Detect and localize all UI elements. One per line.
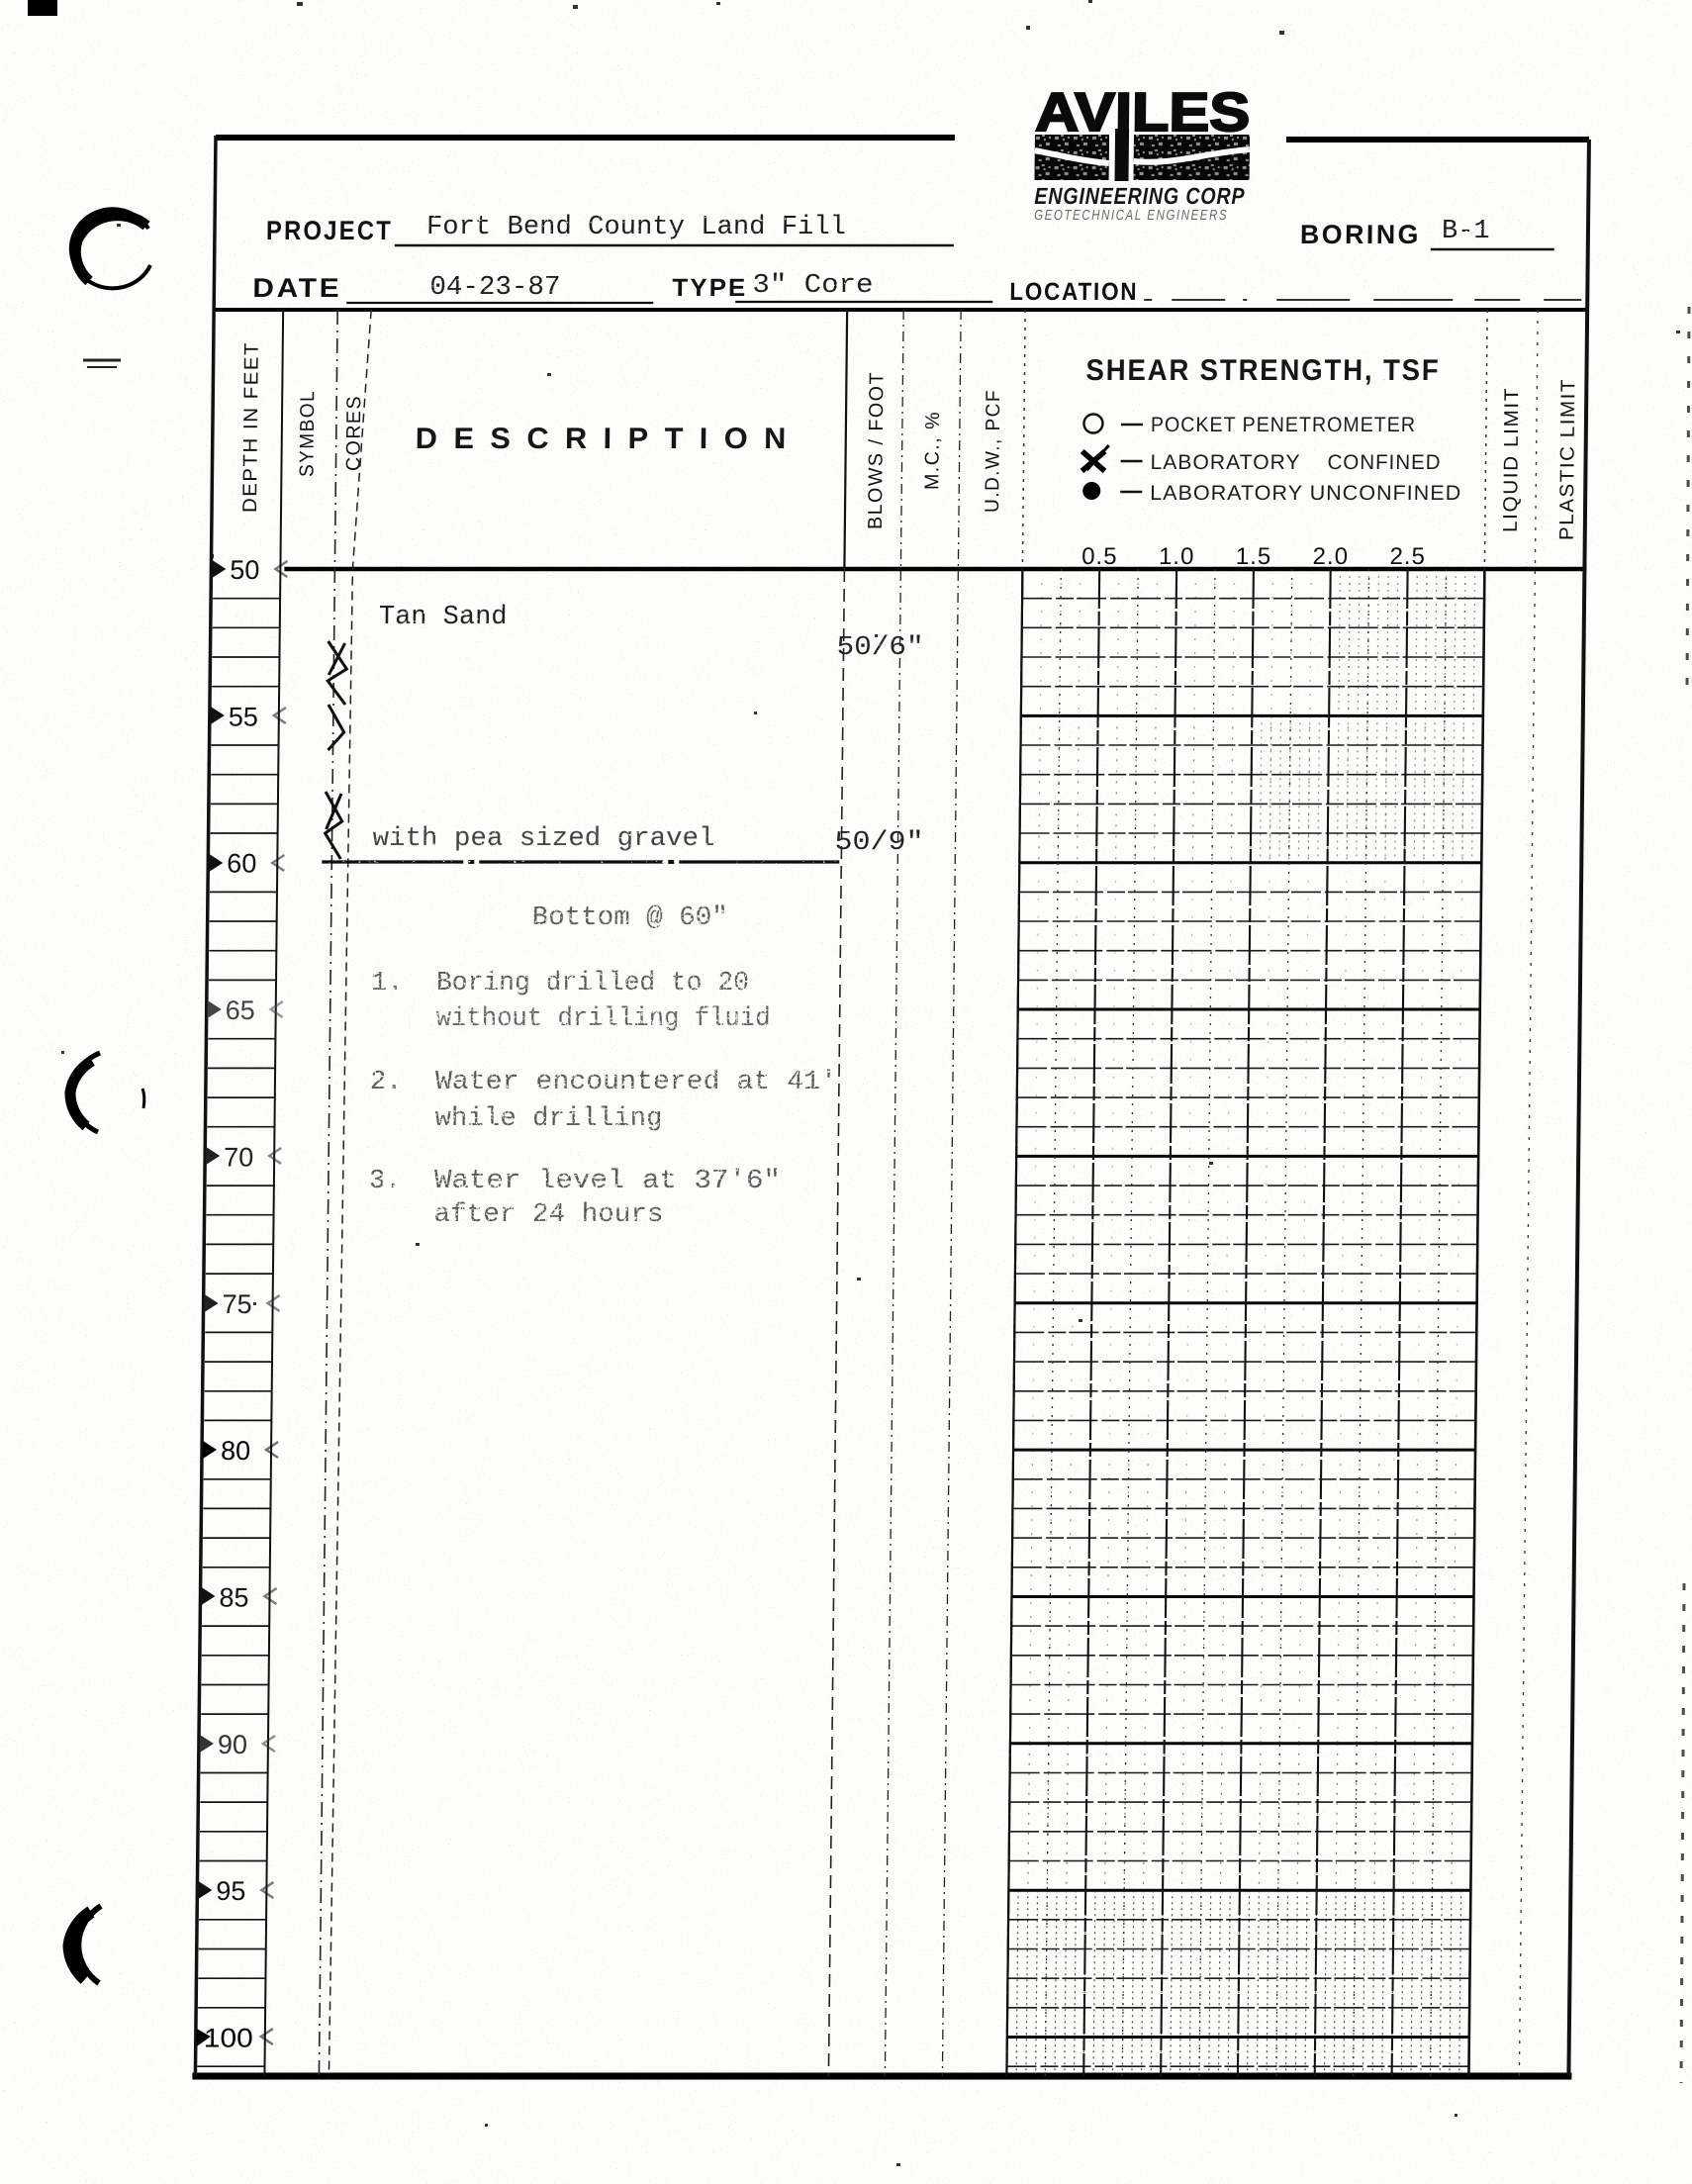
svg-text:PROJECT: PROJECT <box>266 216 393 245</box>
svg-text:Water level at 37'6": Water level at 37'6" <box>434 1167 781 1196</box>
svg-text:CONFINED: CONFINED <box>1327 451 1441 474</box>
svg-text:without drilling fluid: without drilling fluid <box>435 1004 770 1034</box>
svg-text:50: 50 <box>230 555 259 585</box>
svg-text:LOCATION: LOCATION <box>1009 278 1138 306</box>
svg-text:AVILES: AVILES <box>1035 81 1251 142</box>
svg-text:2.: 2. <box>370 1068 403 1097</box>
svg-text:95: 95 <box>216 1876 245 1906</box>
svg-text:BLOWS / FOOT: BLOWS / FOOT <box>865 371 889 529</box>
svg-text:50/9": 50/9" <box>834 828 923 858</box>
svg-text:M.C., %: M.C., % <box>921 411 944 490</box>
svg-text:Water encountered at 41': Water encountered at 41' <box>435 1068 837 1097</box>
svg-text:2.5: 2.5 <box>1389 543 1426 570</box>
svg-text:0.5: 0.5 <box>1081 543 1118 570</box>
svg-text:LABORATORY UNCONFINED: LABORATORY UNCONFINED <box>1150 482 1461 505</box>
svg-text:3.: 3. <box>369 1167 402 1196</box>
svg-text:after 24 hours: after 24 hours <box>433 1200 663 1230</box>
svg-text:U.D.W., PCF: U.D.W., PCF <box>982 389 1004 513</box>
svg-text:LABORATORY: LABORATORY <box>1150 451 1300 474</box>
svg-text:POCKET PENETROMETER: POCKET PENETROMETER <box>1151 414 1416 436</box>
svg-text:with pea sized gravel: with pea sized gravel <box>372 824 714 854</box>
svg-text:DEPTH IN FEET: DEPTH IN FEET <box>239 341 263 513</box>
svg-text:SHEAR STRENGTH, TSF: SHEAR STRENGTH, TSF <box>1085 354 1440 387</box>
svg-text:04-23-87: 04-23-87 <box>429 273 560 303</box>
svg-text:80: 80 <box>221 1436 250 1466</box>
svg-text:3" Core: 3" Core <box>752 271 873 301</box>
svg-text:60: 60 <box>227 849 256 879</box>
svg-text:PLASTIC LIMIT: PLASTIC LIMIT <box>1556 378 1580 540</box>
svg-text:50/6": 50/6" <box>836 633 923 663</box>
svg-text:DESCRIPTION: DESCRIPTION <box>416 423 802 455</box>
svg-text:B-1: B-1 <box>1442 217 1490 246</box>
svg-text:65: 65 <box>226 996 255 1025</box>
svg-text:SYMBOL: SYMBOL <box>296 390 319 477</box>
svg-text:Bottom @ 60": Bottom @ 60" <box>532 903 728 933</box>
svg-text:TYPE: TYPE <box>672 274 747 302</box>
svg-text:90: 90 <box>218 1730 247 1759</box>
svg-text:CORES: CORES <box>342 395 365 471</box>
svg-text:70: 70 <box>224 1142 253 1172</box>
svg-text:85: 85 <box>219 1583 248 1613</box>
svg-text:1.5: 1.5 <box>1236 543 1272 570</box>
svg-text:1.0: 1.0 <box>1159 543 1195 570</box>
svg-text:Fort Bend County Land Fill: Fort Bend County Land Fill <box>426 213 846 242</box>
svg-text:55: 55 <box>229 702 258 731</box>
svg-text:LIQUID LIMIT: LIQUID LIMIT <box>1500 387 1524 532</box>
svg-text:DATE: DATE <box>252 273 341 303</box>
svg-text:GEOTECHNICAL ENGINEERS: GEOTECHNICAL ENGINEERS <box>1034 208 1228 224</box>
svg-text:2.0: 2.0 <box>1313 543 1350 570</box>
svg-text:Tan Sand: Tan Sand <box>379 603 508 632</box>
svg-text:1.: 1. <box>371 969 404 998</box>
svg-text:BORING: BORING <box>1300 220 1421 249</box>
svg-text:75: 75 <box>222 1289 251 1319</box>
svg-text:while drilling: while drilling <box>434 1104 662 1134</box>
svg-text:Boring drilled to 20: Boring drilled to 20 <box>436 969 749 998</box>
svg-text:100: 100 <box>204 2024 253 2053</box>
svg-text:ENGINEERING CORP: ENGINEERING CORP <box>1034 183 1245 209</box>
